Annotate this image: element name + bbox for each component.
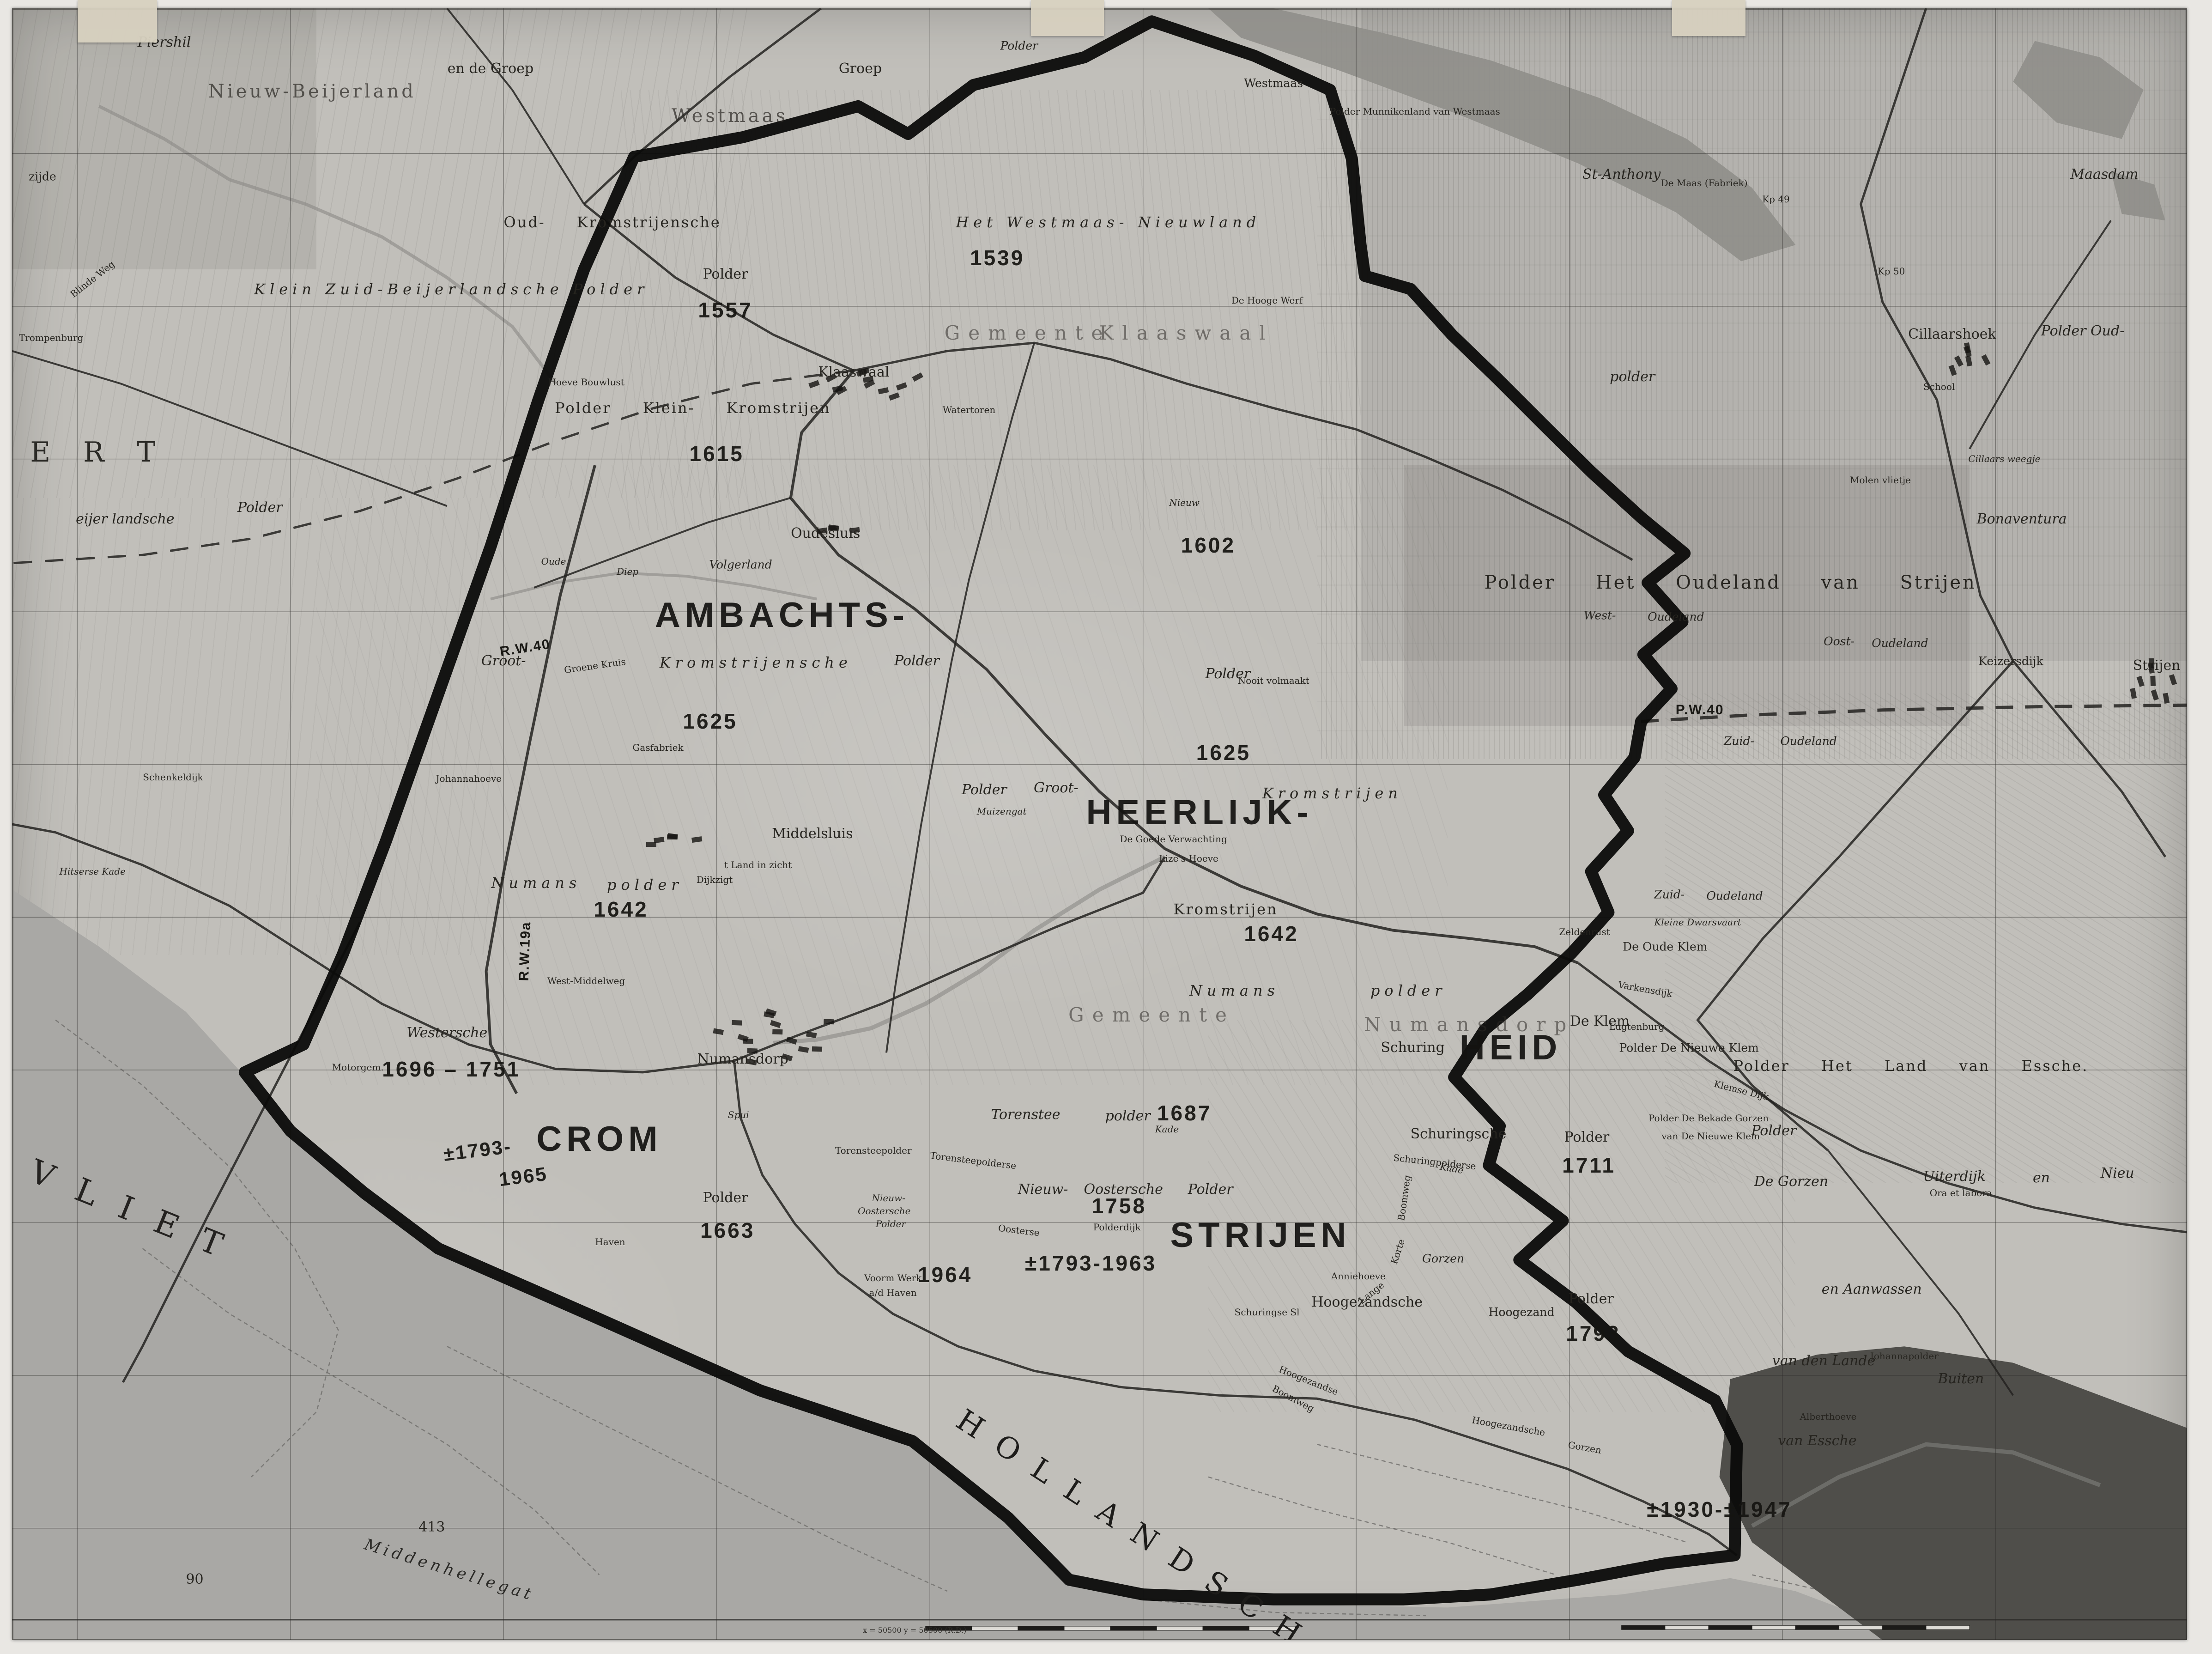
map-label: S E R T <box>12 438 168 466</box>
map-label: Polder <box>1751 1124 1796 1138</box>
map-label: Cillaars weegje <box>1968 454 2040 463</box>
map-label: Maasdam <box>2070 168 2138 182</box>
map-label: Groene Kruis <box>564 657 626 675</box>
map-label: 1557 <box>698 299 752 321</box>
map-label: van De Nieuwe Klem <box>1661 1131 1760 1141</box>
map-label: Nieuw-Beijerland <box>208 82 416 101</box>
map-label: Schuring <box>1381 1041 1444 1055</box>
map-label: HOLLANDSCH <box>951 1405 1322 1640</box>
map-label: Polder <box>703 1191 748 1205</box>
map-label: Strijen <box>2133 659 2181 673</box>
map-label: 1642 <box>1244 923 1298 944</box>
map-label: Polder Het Land van Essche. <box>1733 1058 2089 1073</box>
map-label: Polder <box>703 268 748 281</box>
map-label: 1625 <box>1196 742 1251 763</box>
map-label: Kade <box>1155 1125 1179 1134</box>
map-label: Diep <box>617 567 638 576</box>
map-label: Hitserse Kade <box>59 867 126 876</box>
map-label: Nooit volmaakt <box>1238 676 1309 685</box>
map-label: Polder Munnikenland van Westmaas <box>1330 107 1500 116</box>
map-label: Polder De Nieuwe Klem <box>1619 1042 1758 1053</box>
map-label: De Goede Verwachting <box>1120 834 1227 844</box>
map-label: en Aanwassen <box>1822 1283 1922 1296</box>
map-label: 413 <box>418 1520 445 1534</box>
tape-strip <box>78 0 157 43</box>
map-label: ±1793-1963 <box>1025 1253 1157 1274</box>
map-label: Johannahoeve <box>436 774 502 783</box>
map-label: Lize's Hoeve <box>1159 854 1218 863</box>
map-label: 1642 <box>594 899 648 920</box>
map-label: 1539 <box>970 247 1024 268</box>
map-label: Het Westmaas- Nieuwland <box>956 215 1261 230</box>
map-label: Groep <box>839 62 882 76</box>
map-label: Oosterse <box>998 1223 1040 1238</box>
map-label: De Oude Klem <box>1623 941 1707 952</box>
tape-strip <box>1031 0 1104 36</box>
map-label: 1696 – 1751 <box>382 1058 521 1080</box>
map-label: 1964 <box>918 1264 972 1285</box>
map-label: Oudesluis <box>791 527 860 541</box>
map-label: polder <box>607 877 683 892</box>
map-label: De Maas (Fabriek) <box>1661 178 1748 188</box>
map-label: Anniehoeve <box>1331 1271 1386 1281</box>
map-label: x = 50500 y = 50500 (R.D.) <box>863 1627 966 1634</box>
map-label: Klemse Dijk <box>1713 1079 1770 1101</box>
map-label: Johannapolder <box>1870 1351 1939 1361</box>
map-label: Blinde Weg <box>69 259 116 299</box>
map-label: Oude <box>541 557 566 566</box>
map-label: zijde <box>29 170 56 182</box>
map-label: Middelsluis <box>772 827 853 841</box>
map-label: Trompenburg <box>19 333 83 342</box>
map-label: West-Middelweg <box>547 976 625 985</box>
map-label: Bonaventura <box>1977 512 2067 526</box>
map-labels: PiershilNieuw-Beijerlandzijdeen de Groep… <box>12 8 2187 1640</box>
map-label: Polder <box>876 1219 906 1228</box>
map-label: Polder De Bekade Gorzen <box>1648 1113 1769 1123</box>
map-label: Spui <box>728 1110 749 1119</box>
map-label: Lugtenburg <box>1609 1022 1665 1031</box>
map-label: Kromstrijensche <box>660 655 852 670</box>
map-label: 1711 <box>1562 1155 1616 1176</box>
map-label: Torensteepolderse <box>930 1150 1017 1170</box>
map-label: Gemeente <box>1068 1005 1235 1025</box>
map-label: Groot- <box>1034 781 1079 795</box>
map-label: Gemeente <box>945 323 1111 343</box>
map-label: t Land in zicht <box>724 860 792 870</box>
map-label: en de Groep <box>448 62 533 76</box>
map-label: Voorm Werk <box>864 1273 921 1283</box>
map-label: eijer landsche <box>76 512 175 526</box>
map-label: Polder <box>1569 1292 1614 1306</box>
map-label: Westmaas <box>1244 78 1303 89</box>
map-label: St-Anthony <box>1582 168 1661 182</box>
map-label: polder <box>1105 1109 1151 1123</box>
map-label: Kp 49 <box>1762 195 1790 204</box>
map-label: School <box>1923 382 1955 391</box>
map-label: Molen vlietje <box>1850 475 1911 485</box>
map-label: Schuringsche <box>1411 1127 1507 1141</box>
map-label: Gasfabriek <box>632 743 683 752</box>
map-label: VLIET <box>25 1155 250 1271</box>
map-label: Oudeland <box>1706 890 1763 902</box>
map-label: Hoeve Bouwlust <box>548 377 624 387</box>
map-label: en <box>2033 1171 2050 1185</box>
map-label: CROM <box>536 1122 662 1157</box>
map-label: Korte <box>1389 1238 1406 1265</box>
map-label: Kp 50 <box>1878 267 1905 276</box>
map-label: Polder <box>1000 40 1038 52</box>
map-label: Nieuw- <box>872 1193 905 1203</box>
map-label: Boomweg <box>1396 1174 1412 1221</box>
map-label: Klaaswaal <box>1099 323 1274 343</box>
map-label: ±1930-±1947 <box>1647 1499 1792 1520</box>
map-label: STRIJEN <box>1170 1218 1351 1253</box>
map-label: Nieu <box>2101 1167 2134 1180</box>
map-label: van Essche <box>1778 1434 1856 1448</box>
map-label: Numansdorp <box>697 1052 788 1066</box>
map-label: polder <box>1610 370 1655 384</box>
map-label: HEERLIJK- <box>1086 795 1313 830</box>
map-label: 1793 <box>1566 1323 1620 1344</box>
map-label: AMBACHTS- <box>655 598 909 633</box>
map-label: P.W.40 <box>1676 703 1724 717</box>
map-label: Boomweg <box>1271 1384 1315 1413</box>
map-label: Westersche <box>406 1026 487 1040</box>
map-label: Buiten <box>1938 1372 1984 1386</box>
map-label: Schuringse Sl <box>1235 1307 1300 1317</box>
map-photo: PiershilNieuw-Beijerlandzijdeen de Groep… <box>12 8 2187 1640</box>
map-label: Klaaswaal <box>818 365 889 379</box>
map-label: Klein Zuid-Beijerlandsche Polder <box>254 282 648 297</box>
map-label: Nieuw <box>1169 498 1200 507</box>
map-label: 1965 <box>498 1164 549 1190</box>
map-label: Muizengat <box>977 807 1027 816</box>
map-label: Gorzen <box>1422 1253 1464 1264</box>
map-label: De Hooge Werf <box>1231 296 1303 305</box>
map-label: Volgerland <box>709 559 772 571</box>
map-label: Keizersdijk <box>1978 655 2043 667</box>
map-label: Middenhellegat <box>362 1537 536 1603</box>
map-label: Polder <box>237 501 283 515</box>
map-label: HEID <box>1460 1030 1562 1065</box>
map-label: De Gorzen <box>1754 1175 1829 1189</box>
map-label: Dijkzigt <box>697 875 733 884</box>
map-label: 1615 <box>690 443 744 464</box>
map-label: Polder Het Oudeland van Strijen <box>1484 573 1976 592</box>
map-label: Groot- <box>481 654 526 668</box>
map-label: 1602 <box>1181 535 1236 556</box>
map-label: 1663 <box>700 1220 755 1241</box>
map-label: Oudeland <box>1780 735 1836 747</box>
map-label: Polderdijk <box>1093 1222 1141 1232</box>
map-label: Schenkeldijk <box>143 772 203 782</box>
map-label: Oudeland <box>1648 611 1704 623</box>
map-label: a/d Haven <box>869 1288 917 1297</box>
map-label: Motorgem. <box>332 1063 384 1072</box>
map-label: Polder Klein- Kromstrijen <box>555 401 831 415</box>
map-label: Kromstrijen <box>1174 902 1278 917</box>
map-label: Torensteepolder <box>835 1146 912 1155</box>
map-label: ±1793- <box>442 1137 512 1164</box>
map-label: Polder <box>962 783 1007 797</box>
map-label: R.W.19a <box>517 921 533 981</box>
map-label: Polder <box>1188 1183 1233 1197</box>
map-label: Numans <box>1189 983 1279 998</box>
map-label: Zeldenrust <box>1559 927 1610 936</box>
map-label: Polder Oud- <box>2041 324 2125 338</box>
map-label: 90 <box>186 1573 203 1587</box>
map-label: Cillaarshoek <box>1908 328 1996 341</box>
tape-strip <box>1672 0 1745 36</box>
map-label: Torenstee <box>991 1108 1060 1122</box>
map-label: Nieuw- <box>1018 1183 1068 1197</box>
map-label: Zuid- <box>1654 888 1685 900</box>
map-label: Alberthoeve <box>1800 1412 1857 1421</box>
map-label: Oostersche <box>858 1206 910 1216</box>
map-label: polder <box>1370 983 1447 998</box>
map-label: Gorzen <box>1567 1440 1602 1455</box>
map-label: West- <box>1584 609 1616 621</box>
map-label: 1687 <box>1157 1102 1212 1124</box>
map-label: Polder <box>894 654 939 668</box>
map-label: Hoogezandsche <box>1471 1416 1546 1438</box>
map-label: 1625 <box>683 711 737 732</box>
map-label: Haven <box>595 1237 625 1247</box>
photo-scan-background: PiershilNieuw-Beijerlandzijdeen de Groep… <box>0 0 2212 1654</box>
map-label: Zuid- <box>1724 735 1754 747</box>
map-label: Watertoren <box>943 405 996 414</box>
map-label: Uiterdijk <box>1923 1170 1985 1184</box>
map-label: Varkensdijk <box>1618 980 1673 998</box>
map-label: Ora et labora <box>1930 1188 1992 1198</box>
map-label: Oudeland <box>1872 637 1928 649</box>
map-label: Westmaas <box>672 107 788 125</box>
map-label: 1758 <box>1092 1195 1146 1216</box>
map-label: van den Lande <box>1772 1354 1876 1368</box>
map-label: Kleine Dwarsvaart <box>1654 918 1741 927</box>
map-label: Oud- Kromstrijensche <box>504 215 721 230</box>
map-label: Numans <box>491 876 581 890</box>
map-label: Polder <box>1564 1131 1609 1144</box>
map-label: Oost- <box>1824 636 1854 647</box>
map-label: Hoogezand <box>1489 1307 1555 1318</box>
